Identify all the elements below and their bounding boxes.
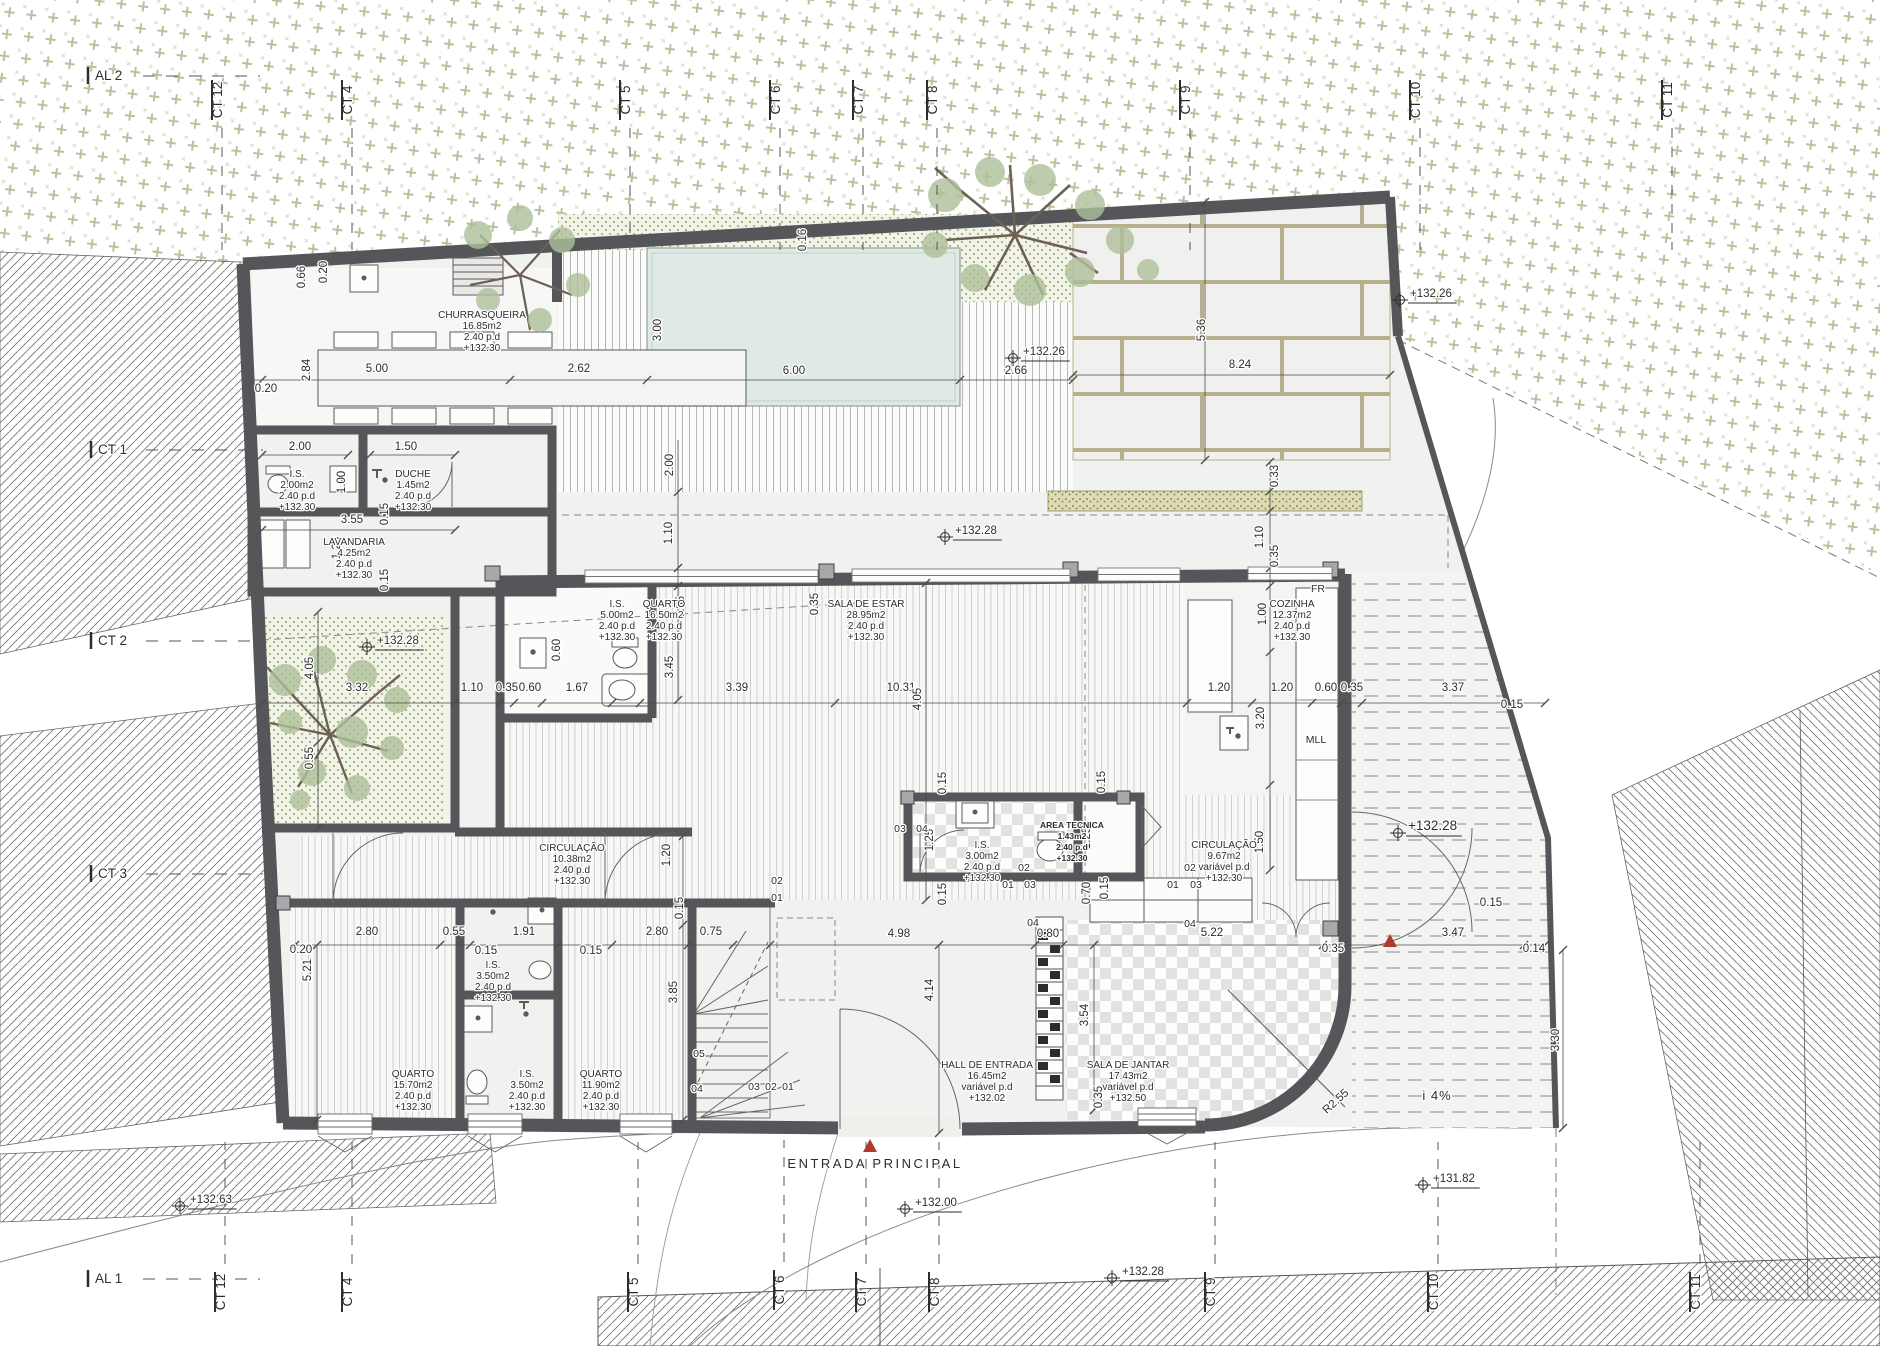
dimension-label: 1.20 — [661, 844, 673, 866]
floor-plan-svg: 5.002.626.002.668.245.360.163.000.660.20… — [0, 0, 1880, 1346]
dimension-label: 3.85 — [668, 981, 680, 1003]
chair — [334, 332, 378, 348]
dimension-label: 3.45 — [664, 656, 676, 678]
dimension-label: 4.14 — [924, 978, 936, 1001]
room-label: COZINHA12.37m22.40 p.d+132.30 — [1270, 599, 1315, 643]
dimension-label: 0.66 — [296, 266, 308, 288]
dimension-label: 2.80 — [646, 926, 668, 938]
dimension-label: 3.00 — [652, 319, 664, 341]
finish-tag: 01 — [1167, 879, 1179, 891]
elevation-value: +131.82 — [1433, 1173, 1475, 1185]
dimension-label: 4.98 — [888, 928, 910, 940]
dimension-label: 0.15 — [379, 503, 391, 525]
finish-tag: 03 — [748, 1081, 760, 1093]
dimension-label: 0.35 — [809, 593, 821, 615]
dimension-label: 0.15 — [475, 945, 497, 957]
bedroom11-floor — [562, 908, 688, 1120]
dimension-label: 0.35 — [1341, 682, 1363, 694]
toilet — [467, 1070, 487, 1094]
dimension-label: 0.70 — [1081, 882, 1093, 904]
dimension-label: 0.35 — [1269, 545, 1281, 567]
dimension-label: 4.05 — [912, 688, 924, 710]
dimension-label: 1.10 — [461, 682, 483, 694]
dimension-label: 2.00 — [289, 441, 311, 453]
finish-tag: 02 — [1018, 862, 1030, 874]
dimension-label: 6.00 — [783, 365, 805, 377]
room-label: DUCHE1.45m22.40 p.d+132.30 — [395, 469, 432, 513]
dimension-label: 2.66 — [1005, 365, 1027, 377]
chair — [392, 408, 436, 424]
room-label: QUARTO11.90m22.40 p.d+132.30 — [580, 1069, 623, 1113]
neighbor-parcel-left-2 — [0, 703, 280, 1146]
elevation-value: +132.28 — [1122, 1266, 1164, 1278]
chair — [392, 332, 436, 348]
dimension-label: 1.91 — [513, 926, 535, 938]
laundry-machine — [260, 520, 284, 568]
dimension-label: 2.62 — [568, 363, 590, 375]
finish-tag: 03 — [1024, 879, 1036, 891]
planting-strip — [1048, 491, 1362, 511]
dimension-label: 5.36 — [1196, 319, 1208, 341]
column — [1323, 921, 1338, 936]
toilet — [613, 648, 637, 668]
finish-tag: 05 — [693, 1048, 705, 1060]
grid-marker: AL 1 — [88, 1270, 260, 1287]
grid-marker-label: AL 2 — [95, 68, 122, 83]
dimension-label: 1.67 — [566, 682, 588, 694]
room-label: QUARTO16.50m22.40 p.d+132.30 — [643, 599, 686, 643]
grid-marker-label: CT 1 — [98, 442, 127, 457]
grid-marker: CT 10 — [1426, 1142, 1441, 1312]
dimension-label: 0.33 — [1269, 465, 1281, 487]
finish-tag: 01 — [782, 1081, 794, 1093]
dimension-label: 3.39 — [726, 682, 748, 694]
elevation-value: +132.28 — [377, 635, 419, 647]
floor-plan-canvas: 5.002.626.002.668.245.360.163.000.660.20… — [0, 0, 1880, 1346]
dimension-label: 3.54 — [1079, 1003, 1091, 1026]
grid-marker: CT 5 — [626, 1142, 641, 1312]
elevation-value: +132.26 — [1410, 288, 1452, 300]
dimension-label: 0.16 — [797, 229, 809, 251]
dimension-label: 5.00 — [366, 363, 388, 375]
finish-tag: 04 — [1027, 917, 1039, 929]
dimension-label: 0.35 — [496, 682, 518, 694]
finish-tag: FR — [1311, 583, 1325, 595]
annotation-label: i 4% — [1422, 1088, 1451, 1103]
dimension-label: 8.24 — [1229, 359, 1252, 371]
finish-tag: 02 — [765, 1081, 777, 1093]
window — [1138, 1108, 1196, 1144]
dimension-label: 0.15 — [379, 569, 391, 591]
kitchen-island — [1220, 716, 1248, 750]
grid-marker-label: CT 2 — [98, 633, 127, 648]
dimension-label: 0.20 — [290, 944, 312, 956]
dimension-label: 0.15 — [937, 772, 949, 794]
column — [485, 566, 500, 581]
column — [276, 896, 290, 910]
grid-marker-label: AL 1 — [95, 1271, 122, 1286]
upper-staircase — [1036, 917, 1063, 1100]
dimension-label: 0.15 — [580, 945, 602, 957]
dimension-label: 0.20 — [255, 383, 277, 395]
column — [901, 791, 914, 804]
bbq-sink-drain — [362, 276, 366, 280]
grid-marker: CT 6 — [772, 1140, 787, 1310]
dining-table — [318, 350, 746, 406]
dimension-label: 3.55 — [341, 514, 363, 526]
finish-tag: 03 — [894, 823, 906, 835]
dimension-label: 0.80 — [1037, 928, 1059, 940]
laundry-machine — [286, 520, 310, 568]
elevation-value: +132.26 — [1023, 346, 1065, 358]
circulation10-floor — [300, 836, 690, 904]
dimension-label: 3.20 — [1255, 707, 1267, 729]
toilet-tank — [266, 466, 290, 474]
finish-tag: 01 — [1002, 879, 1014, 891]
finish-tag: 02 — [771, 875, 783, 887]
vent-grille — [453, 258, 503, 295]
dimension-label: 0.15 — [937, 883, 949, 905]
elevation-value: +132.28 — [1408, 818, 1457, 833]
dimension-label: 0.15 — [1480, 897, 1502, 909]
elevation-value: +132.28 — [955, 525, 997, 537]
annotation-label: ENTRADA PRINCIPAL — [787, 1156, 962, 1171]
finish-tag: MLL — [1306, 734, 1327, 746]
chair — [508, 408, 552, 424]
dimension-label: 3.47 — [1442, 927, 1464, 939]
grid-marker-label: CT 3 — [98, 866, 127, 881]
dimension-label: 5.21 — [302, 959, 314, 981]
dimension-label: 0.35 — [1322, 943, 1344, 955]
dimension-label: 3.32 — [346, 682, 368, 694]
entry-marker-triangle — [863, 1139, 877, 1152]
toilet — [529, 961, 551, 979]
chair — [508, 332, 552, 348]
dimension-label: 1.10 — [1254, 526, 1266, 548]
dimension-label: 0.15 — [1099, 877, 1111, 899]
dimension-label: 0.60 — [1315, 682, 1337, 694]
dimension-label: 0.60 — [551, 639, 563, 661]
dimension-label: 2.80 — [356, 926, 378, 938]
dimension-label: 0.14 — [1523, 943, 1546, 955]
dimension-label: 0.55 — [304, 747, 316, 769]
dimension-label: 1.20 — [1208, 682, 1230, 694]
dimension-label: 0.55 — [443, 926, 465, 938]
elevation-value: +132.63 — [190, 1194, 232, 1206]
dimension-label: 1.00 — [1257, 603, 1269, 625]
finish-tag: 04 — [1184, 918, 1196, 930]
dimension-label: 1.50 — [395, 441, 417, 453]
elevation-value: +132.00 — [915, 1197, 957, 1209]
dimension-label: 1.00 — [336, 471, 348, 493]
column — [819, 564, 834, 579]
column — [1117, 791, 1130, 804]
dimension-label: 5.22 — [1201, 927, 1223, 939]
grid-marker: CT 9 — [1203, 1142, 1218, 1312]
chair — [450, 408, 494, 424]
chair — [334, 408, 378, 424]
finish-tag: 03 — [1190, 879, 1202, 891]
dimension-label: 3.37 — [1442, 682, 1464, 694]
dimension-label: 4.05 — [304, 657, 316, 679]
finish-tag: 04 — [691, 1083, 703, 1095]
ramp-area — [1352, 572, 1556, 1128]
dimension-label: 1.20 — [1271, 682, 1293, 694]
dimension-label: 3.30 — [1550, 1029, 1562, 1051]
grid-marker: CT 2 — [91, 632, 263, 649]
dimension-label: 1.10 — [663, 522, 675, 544]
dimension-label: 2.84 — [301, 358, 313, 381]
finish-tag: 02 — [1184, 862, 1196, 874]
finish-tag: 04 — [916, 823, 928, 835]
room-label: QUARTO15.70m22.40 p.d+132.30 — [392, 1069, 435, 1113]
dimension-label: 0.75 — [700, 926, 722, 938]
dimension-label: 0.15 — [1096, 771, 1108, 793]
kitchen-counter — [1188, 600, 1232, 712]
site-ground — [243, 197, 1556, 1128]
dimension-label: 2.00 — [664, 454, 676, 476]
toilet-tank — [466, 1096, 488, 1104]
dimension-label: 0.15 — [1501, 699, 1523, 711]
window — [620, 1114, 672, 1152]
finish-tag: 01 — [771, 892, 783, 904]
neighbor-parcel-right — [1612, 670, 1880, 1300]
dimension-label: 0.15 — [674, 897, 686, 919]
neighbor-parcel-bottom-left — [0, 1133, 496, 1222]
dimension-label: 0.60 — [519, 682, 541, 694]
dimension-label: 0.20 — [318, 261, 330, 283]
